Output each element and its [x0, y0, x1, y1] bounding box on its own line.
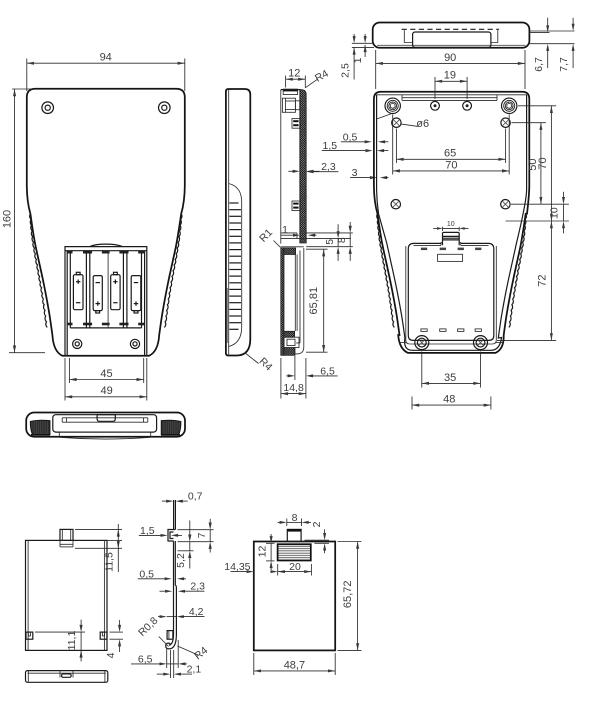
svg-text:65: 65 [444, 148, 456, 160]
svg-text:14,8: 14,8 [283, 382, 304, 394]
svg-text:45: 45 [100, 368, 112, 380]
svg-text:0,7: 0,7 [188, 491, 203, 503]
svg-text:10: 10 [447, 221, 455, 228]
svg-text:5: 5 [324, 239, 336, 245]
svg-text:48: 48 [443, 394, 455, 406]
svg-text:ø6: ø6 [416, 118, 429, 130]
svg-text:19: 19 [444, 70, 456, 82]
svg-text:1: 1 [282, 224, 288, 236]
svg-text:6,7: 6,7 [533, 57, 545, 72]
svg-text:2,5: 2,5 [339, 63, 351, 78]
svg-text:10: 10 [549, 207, 561, 219]
svg-text:4: 4 [105, 652, 117, 658]
svg-text:48,7: 48,7 [284, 659, 305, 671]
svg-text:35: 35 [444, 372, 456, 384]
svg-text:1: 1 [352, 57, 364, 63]
svg-text:94: 94 [100, 52, 112, 64]
svg-text:12: 12 [256, 546, 268, 558]
svg-text:160: 160 [1, 210, 13, 228]
svg-text:2: 2 [311, 521, 323, 527]
svg-text:12: 12 [288, 68, 300, 80]
svg-text:7: 7 [196, 532, 208, 538]
svg-text:72: 72 [536, 274, 548, 286]
svg-text:65,81: 65,81 [308, 287, 320, 315]
svg-text:5,2: 5,2 [175, 553, 187, 568]
svg-text:65,72: 65,72 [342, 581, 354, 609]
svg-text:90: 90 [444, 52, 456, 64]
svg-text:49: 49 [100, 385, 112, 397]
svg-text:11,1: 11,1 [66, 631, 78, 651]
svg-text:70: 70 [445, 159, 457, 171]
svg-text:7,7: 7,7 [558, 57, 570, 72]
svg-text:20: 20 [289, 561, 301, 573]
svg-text:70: 70 [537, 157, 549, 169]
svg-text:11,5: 11,5 [103, 552, 115, 572]
svg-text:8: 8 [292, 512, 298, 524]
